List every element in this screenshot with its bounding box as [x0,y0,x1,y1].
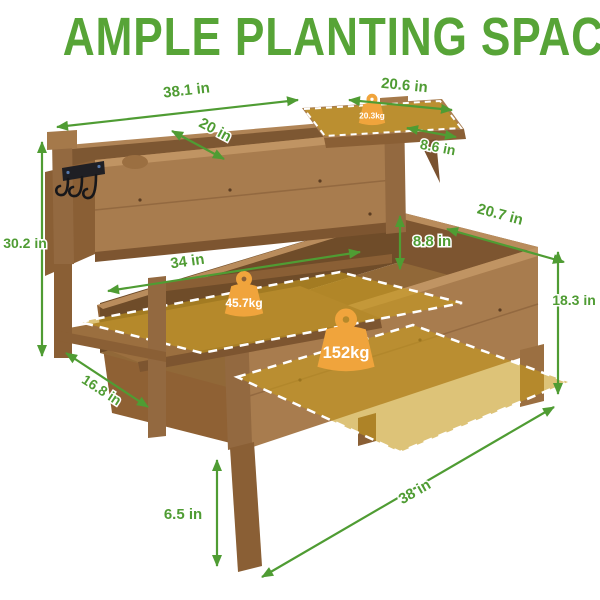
svg-text:45.7kg: 45.7kg [225,296,262,310]
dim-label-side-shelf-length: 20.6 in [380,75,428,96]
dim-label-overall-height: 30.2 in [3,235,47,251]
page-title: AMPLE PLANTING SPACE [0,6,600,68]
svg-text:152kg: 152kg [323,344,370,362]
dim-arrow-upper-length [57,100,298,127]
dim-label-lower-shelf-length: 34 in [169,251,205,273]
upper-left-post [52,136,74,266]
lower-front-leg [230,442,262,572]
dim-label-bed-depth: 8.8 in [413,233,451,250]
dim-label-bed-height: 18.3 in [552,292,596,308]
dim-label-leg-height: 6.5 in [164,506,202,523]
dim-label-bed-width: 20.7 in [475,200,525,229]
product-diagram: 20.3kg 45.7kg 152kg 38.1 in 20 in 20.6 i… [0,0,600,600]
upper-back-left-leg [54,264,72,358]
product-infographic: AMPLE PLANTING SPACE [0,0,600,600]
svg-text:20.3kg: 20.3kg [359,112,385,121]
dim-label-upper-length: 38.1 in [162,79,210,101]
